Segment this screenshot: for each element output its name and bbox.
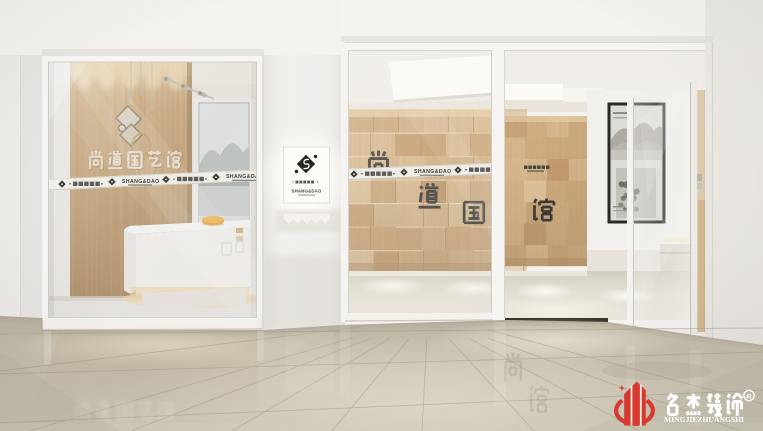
svg-text:R: R	[746, 392, 752, 401]
svg-text:MINGJIEZHUANGSHI: MINGJIEZHUANGSHI	[664, 416, 744, 424]
